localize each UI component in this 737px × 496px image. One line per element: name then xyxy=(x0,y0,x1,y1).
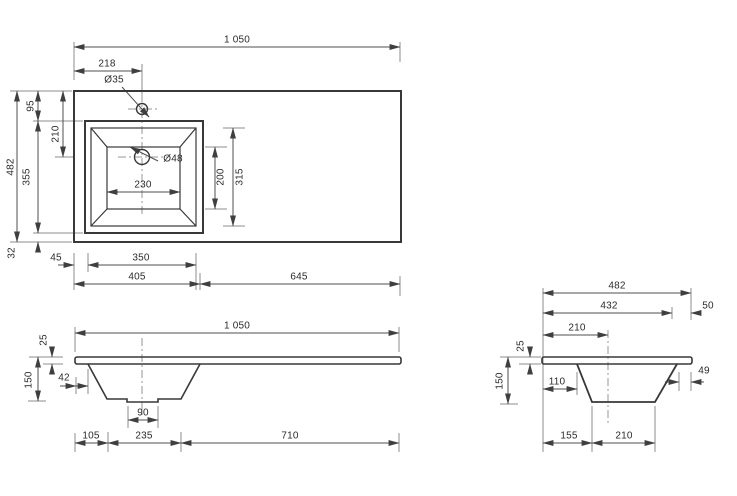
dim-side-drain-from-front: 210 xyxy=(568,323,585,334)
front-bowl-profile xyxy=(88,364,200,402)
dim-top-basin-outer-depth: 355 xyxy=(22,168,33,185)
dim-top-right-section: 645 xyxy=(290,272,307,283)
side-view xyxy=(500,288,704,452)
dim-top-bowl-floor-depth: 200 xyxy=(216,168,227,185)
technical-drawing-canvas: 1 050 218 Ø35 482 95 210 355 32 45 350 4… xyxy=(0,0,737,496)
dim-top-drain-from-top: 210 xyxy=(51,125,62,142)
dim-front-right-section: 710 xyxy=(281,431,298,442)
dim-front-height: 150 xyxy=(24,371,35,388)
dim-side-bowl-back: 432 xyxy=(600,301,617,312)
dim-top-drain-hole-dia: Ø48 xyxy=(163,154,183,165)
dim-top-basin-outer-width: 350 xyxy=(132,253,149,264)
dim-side-back-margin: 50 xyxy=(702,301,714,312)
dim-side-front-margin: 155 xyxy=(560,431,577,442)
dim-top-left-margin: 45 xyxy=(50,253,62,264)
dim-top-bowl-floor-width: 230 xyxy=(134,180,151,191)
dim-side-bowl-depth: 210 xyxy=(615,431,632,442)
top-view xyxy=(10,42,401,296)
dim-front-left-margin: 105 xyxy=(82,431,99,442)
dim-side-overall-depth: 482 xyxy=(608,281,625,292)
dim-front-bowl-width: 235 xyxy=(135,431,152,442)
dim-front-drain-width: 90 xyxy=(137,408,149,419)
dim-top-faucet-offset: 218 xyxy=(98,59,115,70)
dim-front-thickness: 25 xyxy=(39,334,50,346)
front-countertop-slab xyxy=(75,357,401,364)
countertop-outline xyxy=(74,91,401,242)
side-countertop-slab xyxy=(542,357,692,364)
dim-top-bottom-margin: 32 xyxy=(7,247,18,259)
dim-top-left-section: 405 xyxy=(128,272,145,283)
dim-side-height: 150 xyxy=(495,372,506,389)
basin-rim-outer xyxy=(85,121,203,233)
dim-side-thickness: 25 xyxy=(516,340,527,352)
dim-top-bowl-inner-depth: 315 xyxy=(235,168,246,185)
dim-top-overall-width: 1 050 xyxy=(224,35,250,46)
dim-side-bowl-offset: 110 xyxy=(549,377,566,388)
dim-top-faucet-hole-dia: Ø35 xyxy=(104,75,124,86)
dim-front-overall-width: 1 050 xyxy=(224,321,250,332)
dim-front-bowl-offset: 42 xyxy=(58,373,70,384)
dim-side-back-to-bowl: 49 xyxy=(698,366,710,377)
dim-top-overall-depth: 482 xyxy=(6,158,17,175)
dim-top-top-margin: 95 xyxy=(26,100,37,112)
side-bowl-profile xyxy=(577,364,677,402)
